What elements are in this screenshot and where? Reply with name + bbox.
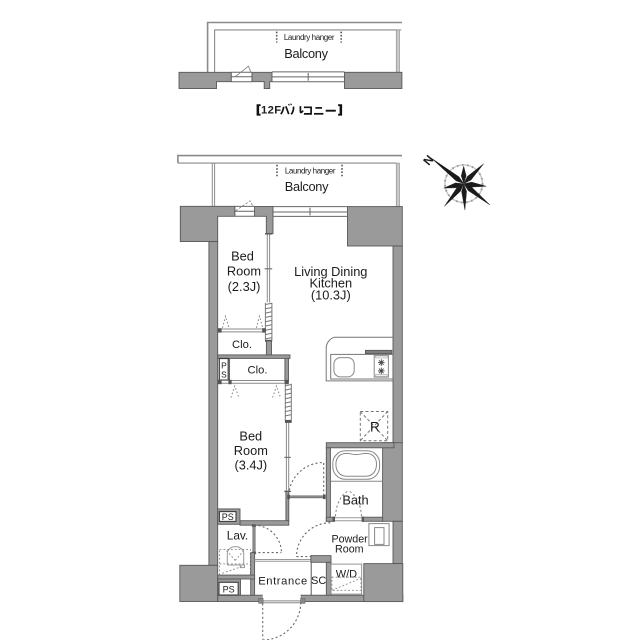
svg-text:Room: Room bbox=[335, 544, 364, 556]
svg-text:Clo.: Clo. bbox=[232, 339, 252, 351]
svg-text:Bed: Bed bbox=[239, 428, 262, 443]
svg-text:Room: Room bbox=[227, 264, 261, 279]
svg-text:Laundry hanger: Laundry hanger bbox=[284, 33, 335, 42]
svg-text:Clo.: Clo. bbox=[248, 365, 268, 377]
svg-text:Bed: Bed bbox=[231, 248, 254, 263]
svg-text:12F: 12F bbox=[261, 105, 281, 117]
svg-text:Entrance: Entrance bbox=[258, 576, 308, 588]
svg-text:Balcony: Balcony bbox=[285, 179, 329, 194]
svg-text:PS: PS bbox=[222, 512, 234, 522]
svg-text:PS: PS bbox=[223, 585, 235, 595]
svg-text:(3.4J): (3.4J) bbox=[234, 458, 267, 473]
svg-text:(2.3J): (2.3J) bbox=[228, 279, 261, 294]
svg-text:SC: SC bbox=[311, 575, 326, 587]
svg-text:Room: Room bbox=[234, 443, 268, 458]
svg-text:R: R bbox=[370, 419, 380, 434]
svg-text:Balcony: Balcony bbox=[284, 46, 328, 61]
svg-text:S: S bbox=[221, 370, 227, 380]
svg-text:W/D: W/D bbox=[336, 569, 357, 581]
svg-text:Bath: Bath bbox=[342, 492, 368, 507]
svg-text:Lav.: Lav. bbox=[227, 529, 248, 543]
svg-text:N: N bbox=[420, 152, 436, 168]
svg-text:(10.3J): (10.3J) bbox=[311, 287, 351, 302]
svg-text:Laundry hanger: Laundry hanger bbox=[285, 167, 336, 176]
